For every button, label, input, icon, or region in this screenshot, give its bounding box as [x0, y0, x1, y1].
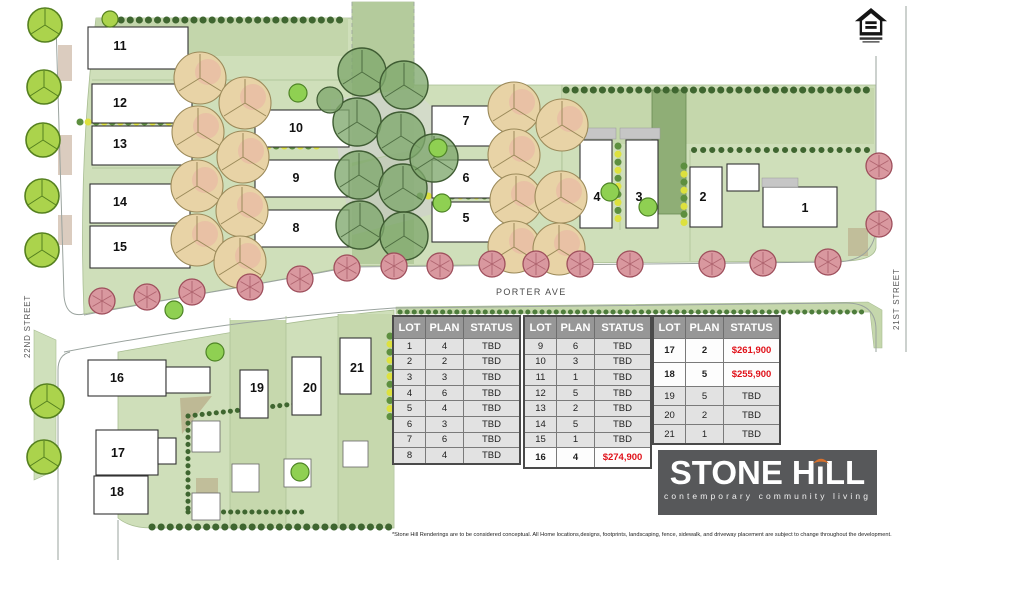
column-header: STATUS: [724, 317, 779, 338]
lot-number: 21: [654, 424, 686, 443]
lot-row-4: 46TBD: [394, 385, 519, 401]
plan-number: 3: [426, 416, 464, 432]
disclaimer-text: *Stone Hill Renderings are to be conside…: [392, 531, 882, 537]
lot-row-21: 211TBD: [654, 424, 779, 443]
lot-number: 8: [394, 447, 426, 463]
map-lot-label-12: 12: [113, 97, 127, 110]
logo-word-stone: STONE: [670, 454, 783, 491]
column-header: PLAN: [557, 317, 595, 338]
map-lot-label-21: 21: [350, 362, 364, 375]
column-header: STATUS: [595, 317, 650, 338]
street-label-22nd-street: 22ND STREET: [23, 295, 32, 358]
status-value: TBD: [464, 354, 519, 370]
lot-row-9: 96TBD: [525, 338, 650, 354]
status-value: $255,900: [724, 362, 779, 386]
map-lot-label-14: 14: [113, 196, 127, 209]
status-value: TBD: [464, 432, 519, 448]
lot-row-12: 125TBD: [525, 385, 650, 401]
map-lot-label-19: 19: [250, 382, 264, 395]
status-value: TBD: [724, 424, 779, 443]
logo-arc-icon: [812, 457, 830, 465]
lot-number: 2: [394, 354, 426, 370]
plan-number: 4: [426, 338, 464, 354]
lot-row-20: 202TBD: [654, 405, 779, 424]
status-value: TBD: [464, 416, 519, 432]
status-value: TBD: [595, 385, 650, 401]
lot-number: 12: [525, 385, 557, 401]
lot-row-10: 103TBD: [525, 354, 650, 370]
map-lot-label-15: 15: [113, 241, 127, 254]
map-lot-label-17: 17: [111, 447, 125, 460]
status-value: TBD: [595, 369, 650, 385]
status-value: TBD: [464, 447, 519, 463]
lot-row-5: 54TBD: [394, 400, 519, 416]
lot-number: 14: [525, 416, 557, 432]
lot-row-8: 84TBD: [394, 447, 519, 463]
street-label-porter-ave: PORTER AVE: [496, 287, 567, 297]
lot-number: 1: [394, 338, 426, 354]
plan-number: 5: [557, 385, 595, 401]
status-value: TBD: [595, 432, 650, 448]
plan-number: 6: [557, 338, 595, 354]
lot-number: 15: [525, 432, 557, 448]
lot-number: 18: [654, 362, 686, 386]
lot-number: 9: [525, 338, 557, 354]
map-lot-label-4: 4: [594, 191, 601, 204]
status-value: TBD: [595, 416, 650, 432]
status-value: TBD: [724, 386, 779, 405]
column-header: LOT: [394, 317, 426, 338]
lot-number: 7: [394, 432, 426, 448]
lot-row-18: 185$255,900: [654, 362, 779, 386]
column-header: LOT: [525, 317, 557, 338]
table-header-row: LOTPLANSTATUS: [654, 317, 779, 338]
lot-row-19: 195TBD: [654, 386, 779, 405]
plan-number: 6: [426, 432, 464, 448]
map-lot-label-5: 5: [463, 212, 470, 225]
lot-row-6: 63TBD: [394, 416, 519, 432]
status-value: TBD: [464, 369, 519, 385]
lot-status-table-1: LOTPLANSTATUS14TBD22TBD33TBD46TBD54TBD63…: [392, 315, 521, 465]
plan-number: 4: [426, 400, 464, 416]
equal-housing-logo: [854, 6, 888, 46]
column-header: PLAN: [426, 317, 464, 338]
status-value: TBD: [724, 405, 779, 424]
status-value: TBD: [464, 385, 519, 401]
map-lot-label-20: 20: [303, 382, 317, 395]
lot-row-3: 33TBD: [394, 369, 519, 385]
status-value: TBD: [464, 400, 519, 416]
lot-row-16: 164$274,900: [525, 447, 650, 467]
lot-number: 19: [654, 386, 686, 405]
plan-number: 5: [686, 362, 724, 386]
plan-number: 1: [686, 424, 724, 443]
plan-number: 4: [426, 447, 464, 463]
lot-number: 3: [394, 369, 426, 385]
map-lot-label-6: 6: [463, 172, 470, 185]
map-lot-label-18: 18: [110, 486, 124, 499]
status-value: TBD: [595, 338, 650, 354]
lot-row-15: 151TBD: [525, 432, 650, 448]
lot-row-14: 145TBD: [525, 416, 650, 432]
lot-number: 11: [525, 369, 557, 385]
lot-number: 10: [525, 354, 557, 370]
column-header: STATUS: [464, 317, 519, 338]
lot-row-1: 14TBD: [394, 338, 519, 354]
map-lot-label-10: 10: [289, 122, 303, 135]
lot-number: 17: [654, 338, 686, 362]
map-lot-label-7: 7: [463, 115, 470, 128]
lot-number: 16: [525, 447, 557, 467]
lot-number: 6: [394, 416, 426, 432]
status-value: TBD: [595, 400, 650, 416]
map-lot-label-1: 1: [802, 202, 809, 215]
lot-row-13: 132TBD: [525, 400, 650, 416]
status-value: $261,900: [724, 338, 779, 362]
street-label-21st-street: 21ST STREET: [892, 268, 901, 330]
map-lot-label-16: 16: [110, 372, 124, 385]
lot-row-11: 111TBD: [525, 369, 650, 385]
table-header-row: LOTPLANSTATUS: [525, 317, 650, 338]
plan-number: 4: [557, 447, 595, 467]
plan-number: 2: [686, 405, 724, 424]
map-lot-label-3: 3: [636, 191, 643, 204]
column-header: LOT: [654, 317, 686, 338]
plan-number: 5: [557, 416, 595, 432]
lot-status-table-2: LOTPLANSTATUS96TBD103TBD111TBD125TBD132T…: [523, 315, 652, 469]
map-lot-label-11: 11: [113, 40, 126, 53]
logo-wordmark: STONEHıLL: [658, 456, 877, 490]
lot-row-2: 22TBD: [394, 354, 519, 370]
status-value: TBD: [595, 354, 650, 370]
lot-status-table-3: LOTPLANSTATUS172$261,900185$255,900195TB…: [652, 315, 781, 445]
plan-number: 3: [426, 369, 464, 385]
site-plan-canvas: 1 2 3 4 5 6 7 8 9 10 11 12 13 14 15 16 1…: [0, 0, 1024, 600]
lot-number: 5: [394, 400, 426, 416]
plan-number: 2: [426, 354, 464, 370]
plan-number: 3: [557, 354, 595, 370]
plan-number: 5: [686, 386, 724, 405]
stonehill-logo: STONEHıLL contemporary community living: [658, 450, 877, 515]
plan-number: 2: [686, 338, 724, 362]
logo-word-ll: LL: [825, 454, 865, 491]
lot-row-17: 172$261,900: [654, 338, 779, 362]
status-value: $274,900: [595, 447, 650, 467]
plan-number: 2: [557, 400, 595, 416]
table-header-row: LOTPLANSTATUS: [394, 317, 519, 338]
plan-number: 6: [426, 385, 464, 401]
map-lot-label-2: 2: [700, 191, 707, 204]
map-lot-label-13: 13: [113, 138, 127, 151]
plan-number: 1: [557, 432, 595, 448]
map-lot-label-9: 9: [293, 172, 300, 185]
lot-row-7: 76TBD: [394, 432, 519, 448]
lot-number: 4: [394, 385, 426, 401]
status-value: TBD: [464, 338, 519, 354]
map-lot-label-8: 8: [293, 222, 300, 235]
plan-number: 1: [557, 369, 595, 385]
column-header: PLAN: [686, 317, 724, 338]
logo-tagline: contemporary community living: [658, 491, 877, 501]
lot-number: 13: [525, 400, 557, 416]
lot-number: 20: [654, 405, 686, 424]
